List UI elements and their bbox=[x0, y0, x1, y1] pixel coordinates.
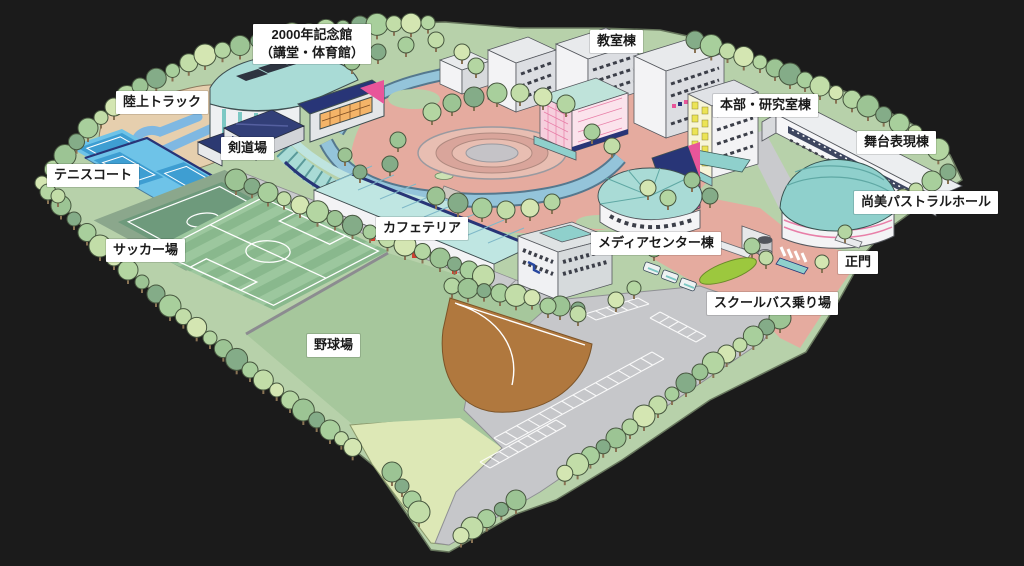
label-baseball-field[interactable]: 野球場 bbox=[307, 334, 360, 357]
label-classroom-building[interactable]: 教室棟 bbox=[590, 30, 643, 53]
label-cafeteria[interactable]: カフェテリア bbox=[376, 217, 468, 240]
label-pastoral-hall[interactable]: 尚美パストラルホール bbox=[854, 191, 998, 214]
label-school-bus-stop[interactable]: スクールバス乗り場 bbox=[707, 292, 838, 315]
label-stage-expression[interactable]: 舞台表現棟 bbox=[857, 131, 936, 154]
label-tennis-courts[interactable]: テニスコート bbox=[47, 164, 139, 187]
label-memorial-hall[interactable]: 2000年記念館 （講堂・体育館） bbox=[253, 24, 371, 64]
label-kendo-hall[interactable]: 剣道場 bbox=[221, 137, 274, 160]
label-media-center[interactable]: メディアセンター棟 bbox=[591, 232, 721, 255]
label-headquarters-research[interactable]: 本部・研究室棟 bbox=[713, 94, 818, 117]
label-soccer-field[interactable]: サッカー場 bbox=[106, 239, 185, 262]
label-main-gate[interactable]: 正門 bbox=[838, 251, 878, 274]
label-athletics-track[interactable]: 陸上トラック bbox=[116, 91, 208, 114]
campus-map-illustration bbox=[0, 0, 1024, 566]
campus-map-page: 2000年記念館 （講堂・体育館） 陸上トラック 剣道場 テニスコート サッカー… bbox=[0, 0, 1024, 566]
